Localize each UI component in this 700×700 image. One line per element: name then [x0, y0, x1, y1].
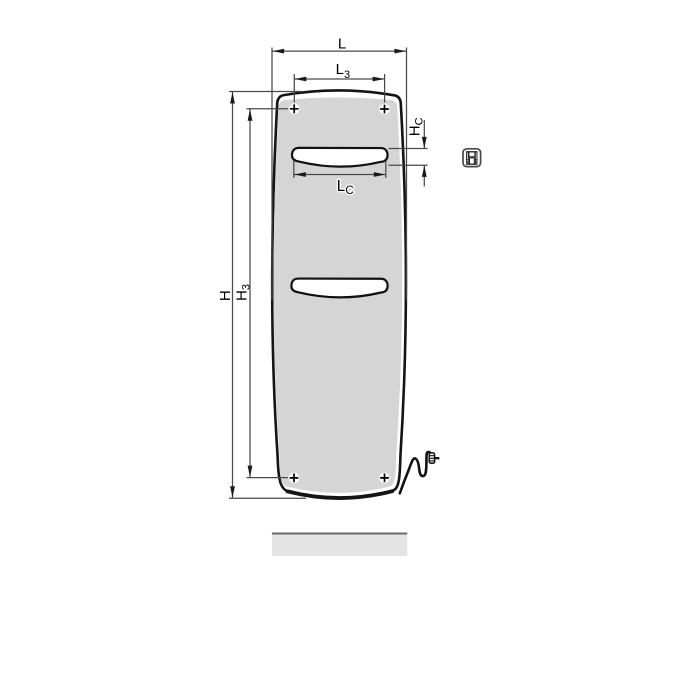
svg-text:L3: L3	[336, 61, 350, 81]
svg-text:HC: HC	[407, 117, 426, 136]
svg-text:H3: H3	[233, 284, 252, 301]
svg-text:L: L	[338, 35, 346, 52]
svg-text:H: H	[217, 290, 234, 301]
